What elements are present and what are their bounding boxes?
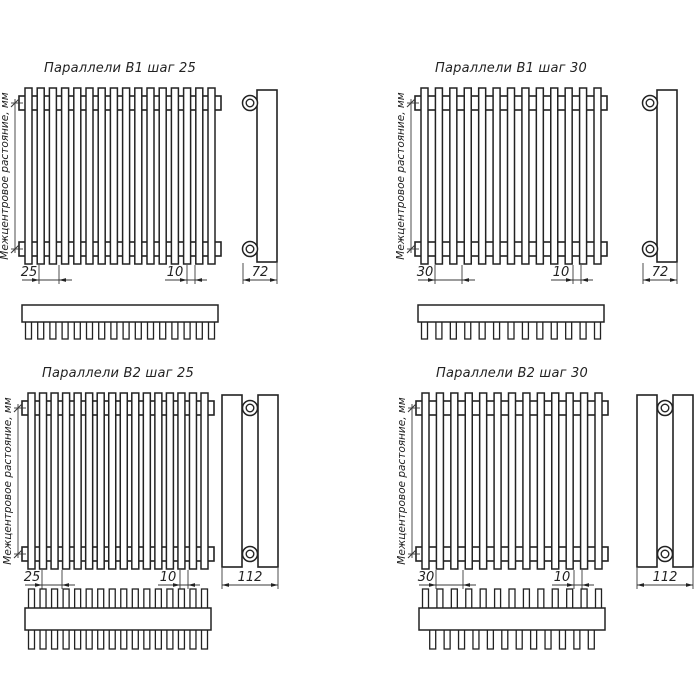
panel-b1-step30: Параллели В1 шаг 30 Межцентровое растоян… — [350, 55, 700, 360]
tube-width-dimension: 10 — [165, 265, 207, 284]
side-view — [637, 395, 693, 567]
depth-dimension-label: 112 — [653, 570, 678, 585]
top-view — [22, 305, 218, 339]
tube-width-dimension: 10 — [158, 570, 200, 589]
top-view — [25, 589, 211, 649]
side-view — [222, 395, 278, 567]
step-dimension: 25 — [21, 265, 72, 284]
tube-width-dimension-label: 10 — [167, 265, 184, 280]
center-distance-dimension: Межцентровое растояние, мм — [396, 397, 420, 565]
tube-width-dimension-label: 10 — [554, 570, 571, 585]
step-dimension-label: 25 — [24, 570, 41, 585]
center-distance-dimension: Межцентровое растояние, мм — [395, 92, 419, 260]
front-view — [22, 393, 214, 569]
depth-dimension-label: 112 — [238, 570, 263, 585]
side-view — [243, 90, 278, 262]
center-distance-dimension: Межцентровое растояние, мм — [0, 92, 23, 260]
step-dimension-label: 30 — [417, 265, 434, 280]
panel-b1-step25: Параллели В1 шаг 25 Межцентровое растоян… — [0, 55, 350, 360]
depth-dimension: 112 — [637, 568, 693, 589]
top-view — [418, 305, 604, 339]
center-distance-label: Межцентровое растояние, мм — [2, 397, 14, 565]
tube-width-dimension: 10 — [551, 265, 593, 284]
panel-b2-step25: Параллели В2 шаг 25 Межцентровое растоян… — [0, 360, 350, 700]
center-distance-label: Межцентровое растояние, мм — [0, 92, 11, 260]
tube-width-dimension-label: 10 — [553, 265, 570, 280]
radiator-drawing-b2-step25: Межцентровое растояние, мм2510112 — [0, 360, 350, 700]
depth-dimension-label: 72 — [252, 265, 269, 280]
top-view — [419, 589, 605, 649]
radiator-drawing-b2-step30: Межцентровое растояние, мм3010112 — [350, 360, 700, 700]
radiator-drawing-b1-step30: Межцентровое растояние, мм301072 — [350, 55, 700, 360]
radiator-drawing-b1-step25: Межцентровое растояние, мм251072 — [0, 55, 350, 360]
side-view — [643, 90, 678, 262]
depth-dimension: 112 — [222, 568, 278, 589]
tube-width-dimension-label: 10 — [160, 570, 177, 585]
step-dimension: 30 — [417, 265, 475, 284]
depth-dimension: 72 — [243, 263, 277, 284]
front-view — [416, 393, 608, 569]
panel-b2-step30: Параллели В2 шаг 30 Межцентровое растоян… — [350, 360, 700, 700]
step-dimension: 30 — [418, 570, 476, 589]
drawing-canvas: Параллели В1 шаг 25 Межцентровое растоян… — [0, 0, 700, 700]
tube-width-dimension: 10 — [552, 570, 594, 589]
depth-dimension: 72 — [643, 263, 677, 284]
step-dimension-label: 30 — [418, 570, 435, 585]
front-view — [19, 88, 221, 264]
front-view — [415, 88, 607, 264]
step-dimension-label: 25 — [21, 265, 38, 280]
depth-dimension-label: 72 — [652, 265, 669, 280]
center-distance-dimension: Межцентровое растояние, мм — [2, 397, 26, 565]
center-distance-label: Межцентровое растояние, мм — [395, 92, 407, 260]
center-distance-label: Межцентровое растояние, мм — [396, 397, 408, 565]
step-dimension: 25 — [24, 570, 75, 589]
